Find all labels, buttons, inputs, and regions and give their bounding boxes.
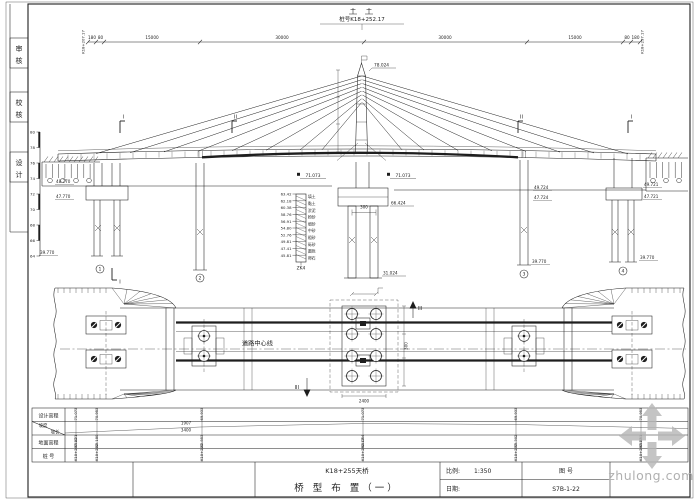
dim-label: 30000 [275,35,289,40]
deck-elevation-left: 71.073 [305,173,320,179]
ruler-value: 78 [30,145,35,150]
project-name: K18+255天桥 [325,466,369,475]
dim-label: 80 [624,35,630,40]
elevation-label: 47.721 [644,194,659,199]
section-arrow-label: III [418,306,422,312]
borehole-soil: 粗砂 [308,235,316,240]
pier-number: 3 [523,272,526,278]
figure-number-label: 图 号 [559,468,573,475]
sheet-title: 桥 型 布 置（一） [294,482,400,494]
borehole-elev: 60.38 [281,205,292,210]
elevation-label: 48.770 [56,179,71,184]
pylon-pile-elevation: 31.024 [383,271,398,276]
borehole-elev: 52.76 [281,232,292,237]
margin-box-label: 核 [16,110,23,119]
elev-marker-icon [297,173,300,176]
ruler-value: 70 [30,207,35,212]
borehole-soil: 黏土 [308,201,316,206]
elevation-label: 49.724 [534,185,549,190]
dim-label: 180 [88,35,96,40]
dim-label: 15000 [145,35,159,40]
borehole-soil: 中砂 [308,228,316,233]
margin-box-label: 审 [16,44,23,53]
borehole-soil: 填土 [308,194,316,199]
elevation-label: 39.770 [532,259,547,264]
borehole-elev: 58.76 [281,212,292,217]
ruler-value: 72 [30,192,35,197]
borehole-elev: 54.80 [281,226,292,231]
grade-value-top: 1907 [181,421,192,426]
section-label: I [631,115,632,121]
center-station-note: 桩号K18+252.17 [339,15,385,23]
pilecap-elevation: 66.424 [391,201,406,206]
elevation-label: 39.770 [40,250,55,255]
design-elevation-value: 69.933 [514,407,518,421]
section-label: I [119,280,120,286]
ruler-value: 64 [30,254,35,259]
borehole-name: ZK4 [297,266,306,272]
dim-label: 15000 [568,35,582,40]
margin-box-label: 设 [16,158,23,167]
ruler-value: 74 [30,176,35,181]
borehole-elev: 62.18 [281,198,292,203]
elevation-label: 47.724 [534,195,549,200]
station-label: K18+297.17 [640,30,645,54]
station-value: K18+277 [514,443,518,461]
dim-label: 80 [98,35,104,40]
margin-box-label: 校 [16,98,23,107]
design-elevation-value: 70.953 [639,407,643,421]
pier-number: 1 [99,267,102,273]
pylon-leg-core [360,358,366,363]
section-arrow-label: III [295,385,299,391]
pile-spacing-value: 300 [360,205,368,210]
figure-number: S7B-1-22 [552,486,580,493]
centerline-label: 道路中心线 [242,340,273,348]
profile-row-label: 设计高程 [38,413,58,420]
borehole-soil: 卵石 [308,255,316,260]
margin-box-label: 计 [16,170,23,179]
ruler-block [38,194,40,210]
elev-marker-icon [387,173,390,176]
design-elevation-value: 71.073 [361,407,365,421]
profile-row-label: 坡度 [39,422,48,429]
pier-number: 2 [199,276,202,282]
ruler-block [38,132,40,148]
station-value: K18+207.17 [74,437,78,461]
station-label: K18+207.17 [81,30,86,54]
section-label: II [234,115,237,121]
profile-row-label: 地面高程 [38,440,58,447]
borehole-soil: 圆砾 [308,249,316,254]
ruler-block [38,225,40,241]
borehole-elev: 63.42 [281,192,292,197]
margin-box-label: 核 [16,56,23,65]
grade-value-bottom: 3400 [181,428,192,433]
elevation-label: 47.770 [56,194,71,199]
station-value: K18+212 [95,444,99,461]
deck-elevation-right: 71.073 [395,173,410,179]
design-elevation-value: 70.953 [95,407,99,421]
pier-number: 4 [622,269,625,275]
pylon-leg-core [360,321,366,326]
watermark-text: zhulong.com [608,468,694,483]
section-label: I [123,115,124,121]
bridge-drawing-canvas: 桩号K18+252.17 78.024 71.073 71.073 66.424… [0,0,700,500]
section-label: II [520,115,523,121]
borehole-elev: 56.91 [281,219,292,224]
profile-row-label: 坡长 [51,429,60,436]
station-value: K18+252.17 [361,437,365,461]
ruler-block [38,163,40,179]
ruler-value: 80 [30,130,35,135]
borehole-elev: 45.81 [281,253,292,258]
dim-label: 30000 [438,35,452,40]
paper [0,0,700,500]
borehole-soil: 细砂 [308,221,316,226]
ruler-value: 68 [30,223,35,228]
pylon-top-elevation: 78.024 [374,63,389,69]
borehole-elev: 49.81 [281,239,292,244]
design-elevation-value: 71.073 [74,407,78,421]
scale-label: 比例: [446,467,460,475]
borehole-soil: 淤泥 [308,208,316,213]
date-label: 日期: [446,485,460,493]
elevation-label: 39.770 [640,255,655,260]
ruler-value: 66 [30,238,35,243]
design-elevation-value: 69.933 [200,407,204,421]
scale-value: 1:350 [474,468,491,475]
station-value: K18+227 [200,443,204,461]
profile-row-label: 桩 号 [43,453,55,460]
plan-bottom-dim-value: 2400 [359,399,370,404]
borehole-soil: 粉砂 [308,215,316,220]
borehole-elev: 47.41 [281,246,292,251]
borehole-soil: 砾砂 [308,242,316,247]
station-value: K18+297.17 [639,437,643,461]
plan-side-dim-value: 300 [404,342,409,350]
ruler-value: 76 [30,161,35,166]
elevation-label: 49.721 [644,182,659,187]
